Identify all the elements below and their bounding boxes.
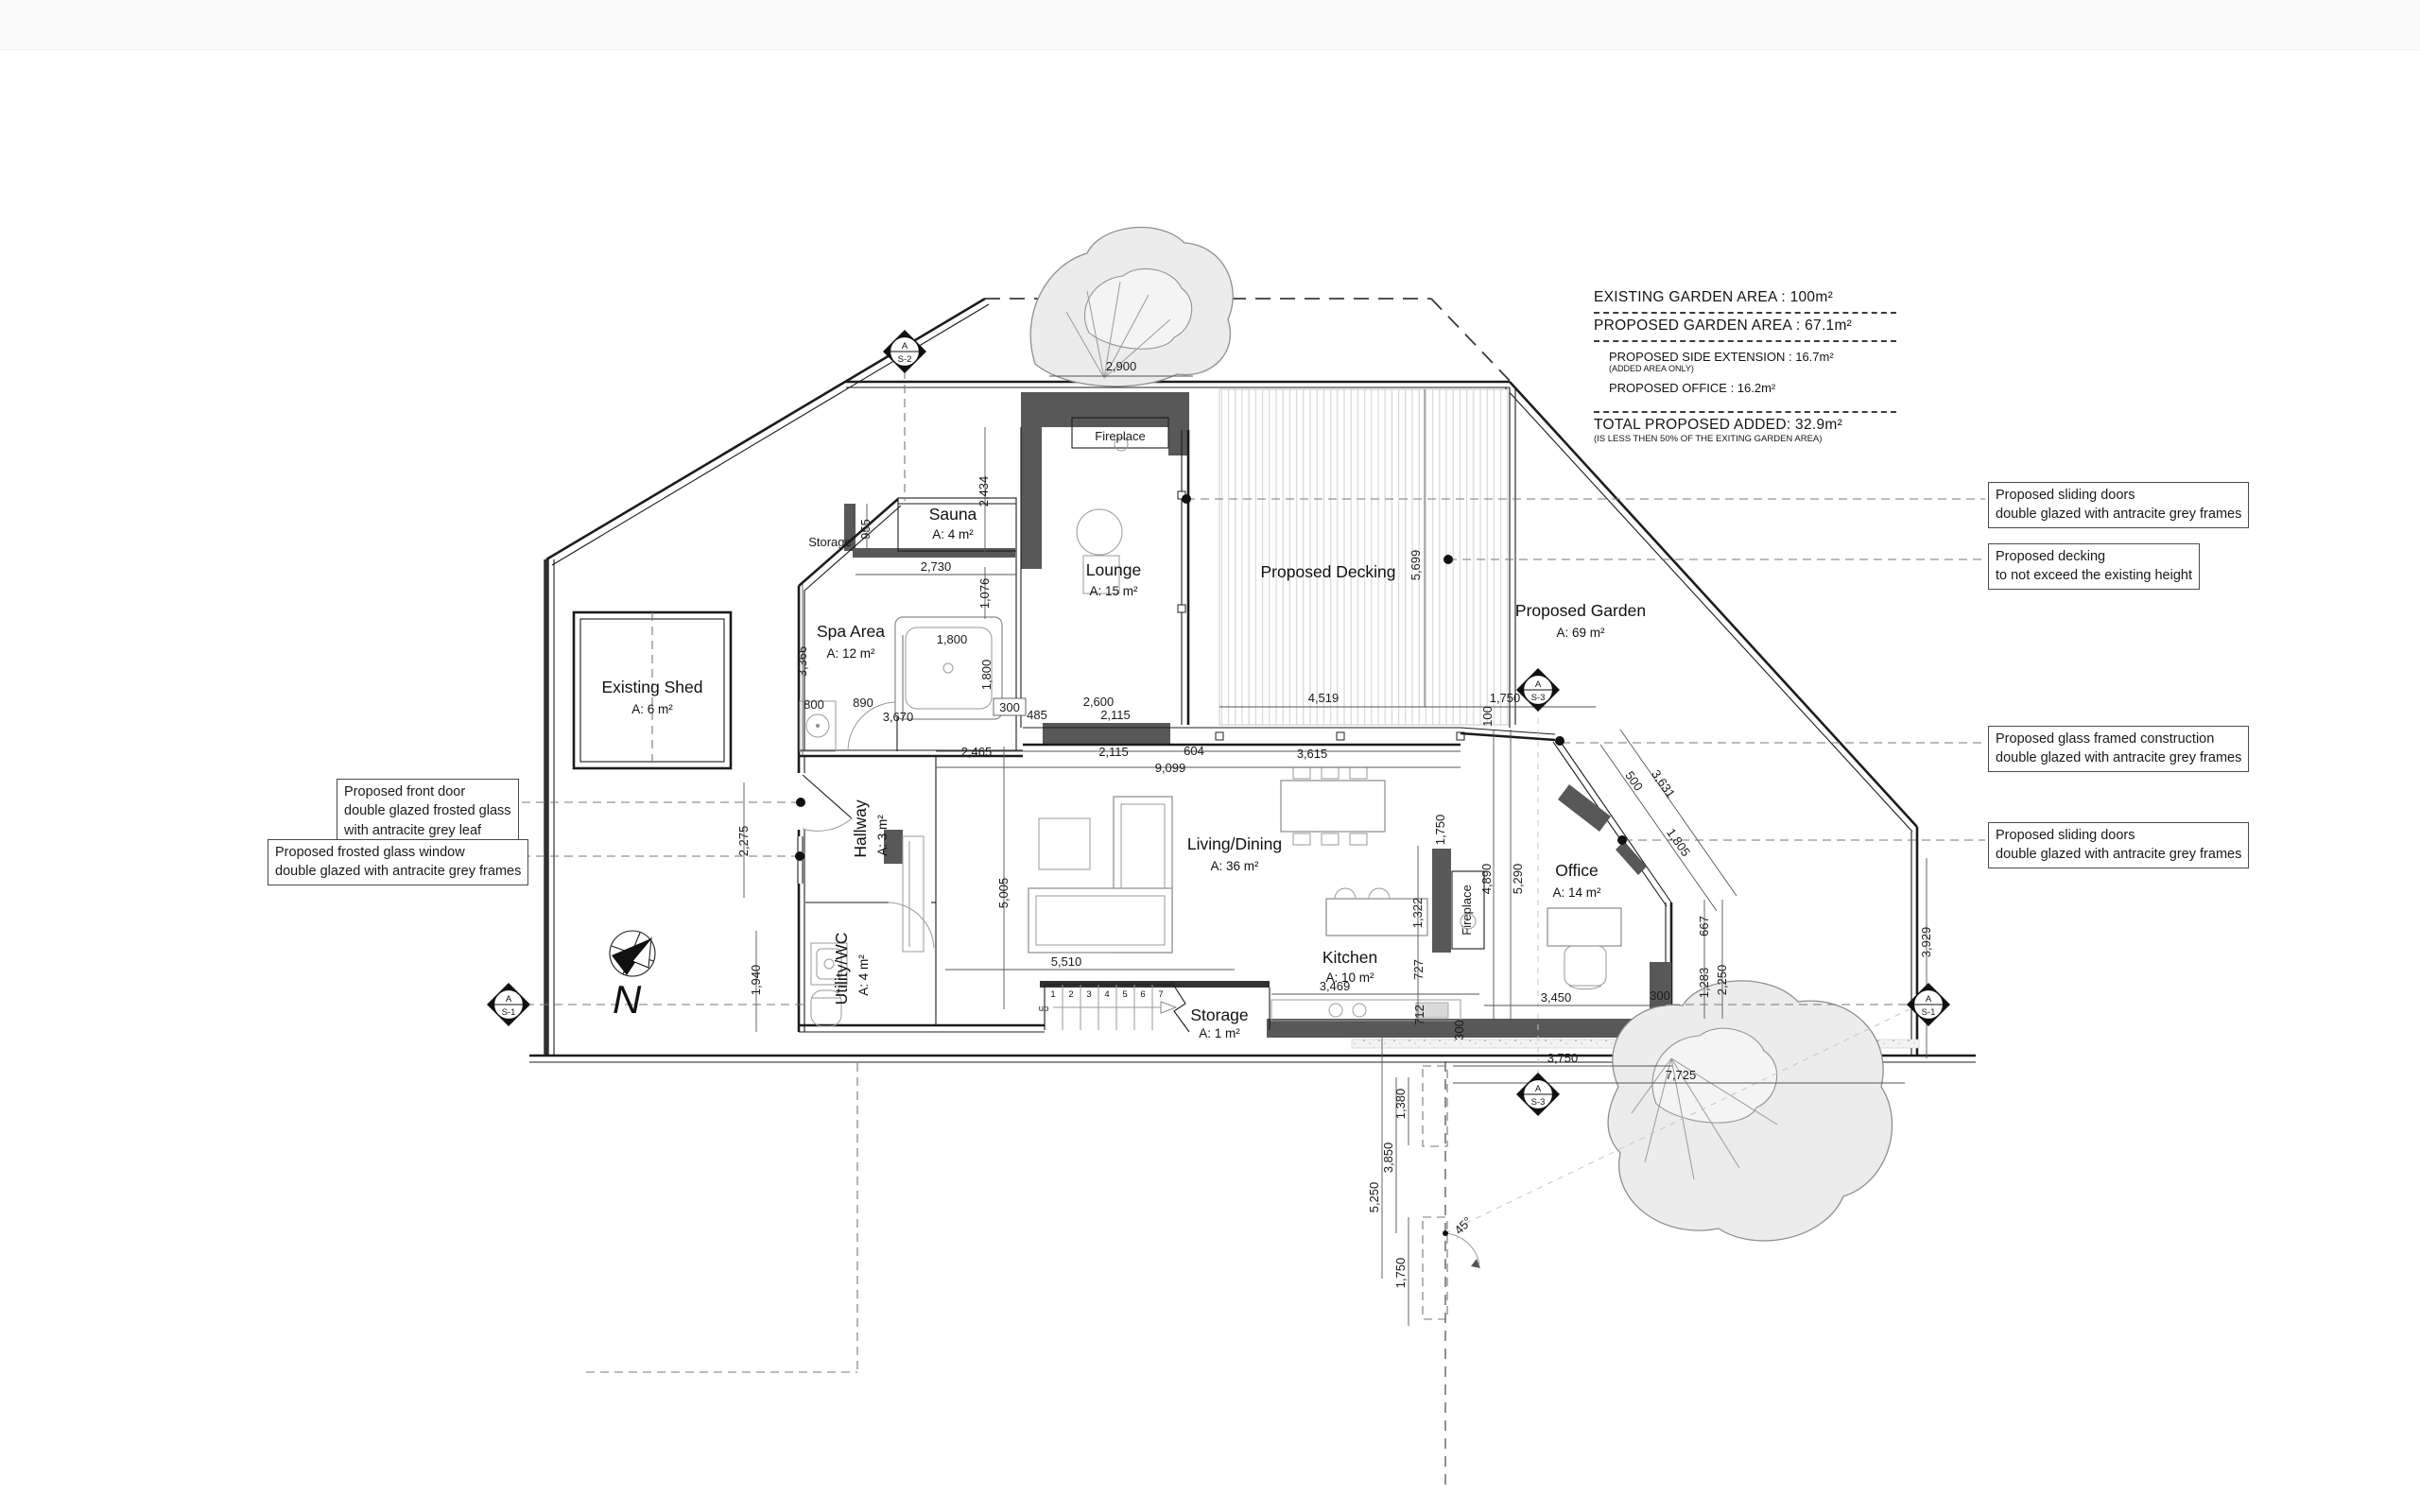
stair-number: 6 bbox=[1140, 989, 1145, 1000]
stair-number: 7 bbox=[1158, 989, 1163, 1000]
marker-code: S-2 bbox=[898, 354, 912, 365]
room-name-spa-area: Spa Area bbox=[817, 622, 885, 641]
dim-label: 3,750 bbox=[1547, 1051, 1579, 1065]
marker-code: S-3 bbox=[1531, 693, 1546, 703]
marker-code: S-1 bbox=[1922, 1007, 1936, 1018]
dim-label: 2,730 bbox=[921, 559, 952, 574]
note-front-door: Proposed front door double glazed froste… bbox=[337, 779, 519, 844]
decking-area bbox=[1219, 389, 1510, 725]
room-area-hallway: A: 3 m² bbox=[875, 815, 890, 856]
dim-label: 1,076 bbox=[977, 578, 992, 610]
summary-proposed-office: PROPOSED OFFICE : 16.2m² bbox=[1609, 381, 1896, 395]
dim-label: 5,699 bbox=[1409, 550, 1423, 581]
room-area-garden: A: 69 m² bbox=[1556, 626, 1605, 640]
dim-label: 800 bbox=[804, 697, 824, 712]
dim-label: 2,900 bbox=[1106, 359, 1137, 373]
note-line: with antracite grey leaf bbox=[344, 821, 511, 840]
dim-label: 5,510 bbox=[1051, 954, 1082, 969]
dim-label: 3,615 bbox=[1297, 747, 1328, 761]
note-line: double glazed with antracite grey frames bbox=[1996, 505, 2241, 524]
sofa bbox=[1028, 797, 1172, 953]
summary-proposed-garden: PROPOSED GARDEN AREA : 67.1m² bbox=[1594, 318, 1896, 335]
dim-label: 5,250 bbox=[1367, 1182, 1381, 1213]
note-line: to not exceed the existing height bbox=[1996, 566, 2192, 585]
dim-label: 667 bbox=[1697, 916, 1711, 936]
room-name-living-dining: Living/Dining bbox=[1187, 834, 1282, 853]
dim-label: 300 bbox=[1452, 1020, 1466, 1040]
dim-label: 1,750 bbox=[1433, 815, 1447, 846]
dim-label: 604 bbox=[1184, 744, 1204, 758]
room-name-utility: Utility/WC bbox=[832, 933, 851, 1005]
room-name-sauna: Sauna bbox=[929, 505, 977, 524]
dim-label: 3,366 bbox=[795, 646, 809, 678]
dim-label: 2,115 bbox=[1100, 708, 1131, 722]
room-name-storage-stairs: Storage bbox=[1190, 1005, 1248, 1024]
dim-label: 2,275 bbox=[736, 826, 751, 857]
room-area-sauna: A: 4 m² bbox=[932, 527, 974, 541]
dim-label: 2,115 bbox=[1098, 745, 1129, 759]
note-line: Proposed sliding doors bbox=[1996, 826, 2241, 845]
dim-label: 2,465 bbox=[961, 745, 993, 759]
stair-number: 4 bbox=[1104, 989, 1109, 1000]
dim-label: 7,725 bbox=[1666, 1068, 1697, 1082]
stair-number: 3 bbox=[1086, 989, 1091, 1000]
summary-side-extension-note: (ADDED AREA ONLY) bbox=[1609, 364, 1896, 373]
floor-plan-page: 2,900 2,434 955 2,730 1,076 3,366 1,800 … bbox=[0, 0, 2420, 1512]
dim-label: 1,940 bbox=[749, 965, 763, 996]
dining-table bbox=[1281, 767, 1385, 845]
dim-label: 4,890 bbox=[1479, 864, 1494, 895]
note-line: Proposed glass framed construction bbox=[1996, 730, 2241, 748]
note-glass-framed: Proposed glass framed construction doubl… bbox=[1988, 726, 2249, 772]
dim-label: 300 bbox=[999, 700, 1020, 714]
fireplace-label-lounge: Fireplace bbox=[1095, 429, 1145, 443]
stair-number: 2 bbox=[1068, 989, 1073, 1000]
dim-label: 1,322 bbox=[1410, 898, 1425, 929]
dim-label: 9,099 bbox=[1155, 761, 1186, 775]
dim-label: 1,800 bbox=[937, 632, 968, 646]
stair-number: 1 bbox=[1050, 989, 1055, 1000]
dim-label: 300 bbox=[1650, 988, 1670, 1003]
fireplace-label-living: Fireplace bbox=[1460, 885, 1474, 935]
marker-code: S-3 bbox=[1531, 1097, 1546, 1108]
note-line: Proposed sliding doors bbox=[1996, 486, 2241, 505]
room-area-storage-stairs: A: 1 m² bbox=[1199, 1026, 1240, 1040]
dim-label: 2,434 bbox=[977, 476, 991, 507]
room-area-living-dining: A: 36 m² bbox=[1210, 859, 1259, 873]
room-area-office: A: 14 m² bbox=[1552, 885, 1601, 900]
room-area-utility: A: 4 m² bbox=[856, 954, 871, 996]
dim-label: 1,750 bbox=[1490, 691, 1521, 705]
note-line: double glazed with antracite grey frames bbox=[275, 862, 521, 881]
dim-label: 1,750 bbox=[1393, 1258, 1408, 1289]
office-desk bbox=[1547, 908, 1621, 989]
summary-side-extension: PROPOSED SIDE EXTENSION : 16.7m² bbox=[1609, 350, 1896, 364]
dim-label: 955 bbox=[858, 519, 873, 540]
note-decking: Proposed decking to not exceed the exist… bbox=[1988, 543, 2200, 590]
dim-label: 45° bbox=[1452, 1214, 1476, 1238]
divider bbox=[1594, 406, 1896, 413]
dim-label: 2,250 bbox=[1715, 965, 1729, 996]
section-marker-bottom: A S-3 bbox=[1516, 1073, 1560, 1116]
note-line: double glazed with antracite grey frames bbox=[1996, 748, 2241, 767]
marker-letter: A bbox=[902, 341, 908, 352]
section-marker-garden: A S-3 bbox=[1516, 668, 1560, 712]
section-marker-left: A S-1 bbox=[487, 983, 530, 1026]
dim-label: 100 bbox=[1480, 706, 1495, 727]
summary-existing-garden: EXISTING GARDEN AREA : 100m² bbox=[1594, 289, 1896, 306]
dim-label: 1,800 bbox=[979, 660, 994, 691]
dim-label: 4,519 bbox=[1308, 691, 1340, 705]
room-name-office: Office bbox=[1555, 861, 1598, 880]
tree-bottom-right bbox=[1608, 981, 1893, 1241]
marker-letter: A bbox=[1535, 1084, 1542, 1094]
dim-label: 727 bbox=[1411, 959, 1426, 980]
note-line: Proposed frosted glass window bbox=[275, 843, 521, 862]
room-area-existing-shed: A: 6 m² bbox=[631, 702, 673, 716]
north-label: N bbox=[613, 977, 642, 1022]
stair-number: 5 bbox=[1122, 989, 1127, 1000]
room-name-lounge: Lounge bbox=[1086, 560, 1141, 579]
dim-label: 890 bbox=[853, 696, 873, 710]
dim-label: 3,450 bbox=[1541, 990, 1572, 1005]
dim-label: 3,850 bbox=[1381, 1143, 1395, 1174]
note-sliding-doors-top: Proposed sliding doors double glazed wit… bbox=[1988, 482, 2249, 528]
room-name-kitchen: Kitchen bbox=[1322, 948, 1377, 967]
storage-label-top: Storage bbox=[808, 535, 852, 549]
marker-letter: A bbox=[506, 994, 512, 1005]
dim-label: 3,670 bbox=[883, 710, 914, 724]
decking-label: Proposed Decking bbox=[1261, 562, 1396, 581]
dim-label: 712 bbox=[1412, 1005, 1426, 1025]
dim-label: 500 bbox=[1622, 768, 1646, 793]
dim-label: 1,380 bbox=[1393, 1089, 1408, 1120]
summary-total: TOTAL PROPOSED ADDED: 32.9m² bbox=[1594, 417, 1896, 434]
room-area-kitchen: A: 10 m² bbox=[1325, 971, 1374, 985]
north-compass-icon bbox=[610, 931, 655, 976]
dim-label: 2,600 bbox=[1083, 695, 1115, 709]
room-area-lounge: A: 15 m² bbox=[1089, 584, 1138, 598]
room-name-existing-shed: Existing Shed bbox=[601, 678, 702, 696]
lounge-furniture bbox=[1077, 509, 1122, 593]
dim-label: 1,283 bbox=[1697, 968, 1711, 999]
note-line: Proposed front door bbox=[344, 782, 511, 801]
dim-label: 5,005 bbox=[996, 878, 1011, 909]
note-line: double glazed with antracite grey frames bbox=[1996, 845, 2241, 864]
kitchen-counter bbox=[1271, 1000, 1461, 1021]
dim-label: 485 bbox=[1027, 708, 1047, 722]
note-line: Proposed decking bbox=[1996, 547, 2192, 566]
room-name-hallway: Hallway bbox=[851, 799, 870, 858]
note-sliding-doors-bottom: Proposed sliding doors double glazed wit… bbox=[1988, 822, 2249, 868]
dim-label: 5,290 bbox=[1511, 864, 1525, 895]
stair-numbers: 1 2 3 4 5 6 7 up bbox=[1039, 989, 1164, 1014]
section-marker-right: A S-1 bbox=[1907, 983, 1950, 1026]
dim-label: 3,929 bbox=[1919, 927, 1933, 958]
note-frosted-window: Proposed frosted glass window double gla… bbox=[268, 839, 528, 885]
divider bbox=[1594, 335, 1896, 342]
marker-letter: A bbox=[1926, 994, 1932, 1005]
room-area-spa-area: A: 12 m² bbox=[826, 646, 875, 661]
stairs-up-label: up bbox=[1039, 1004, 1049, 1014]
divider bbox=[1594, 307, 1896, 314]
room-name-garden: Proposed Garden bbox=[1515, 601, 1646, 620]
summary-total-note: (IS LESS THEN 50% OF THE EXITING GARDEN … bbox=[1594, 434, 1896, 444]
marker-code: S-1 bbox=[502, 1007, 516, 1018]
dim-label: 3,631 bbox=[1649, 767, 1678, 800]
garden-area-summary: EXISTING GARDEN AREA : 100m² PROPOSED GA… bbox=[1594, 289, 1896, 444]
marker-letter: A bbox=[1535, 679, 1542, 690]
note-line: double glazed frosted glass bbox=[344, 801, 511, 820]
